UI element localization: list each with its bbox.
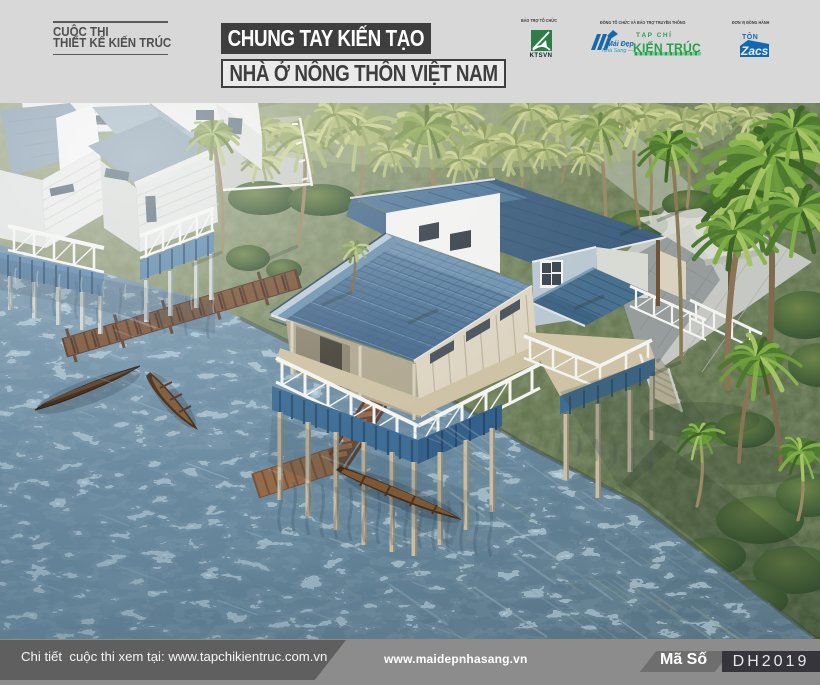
svg-text:Zacs: Zacs [740,44,769,58]
svg-text:TÔN: TÔN [742,32,758,41]
svg-text:TẠP CHÍ: TẠP CHÍ [636,30,672,39]
svg-text:KTSVN: KTSVN [530,53,553,59]
svg-text:Nhà Sang —: Nhà Sang — [602,48,634,54]
svg-text:Mái Đẹp: Mái Đẹp [607,41,635,48]
